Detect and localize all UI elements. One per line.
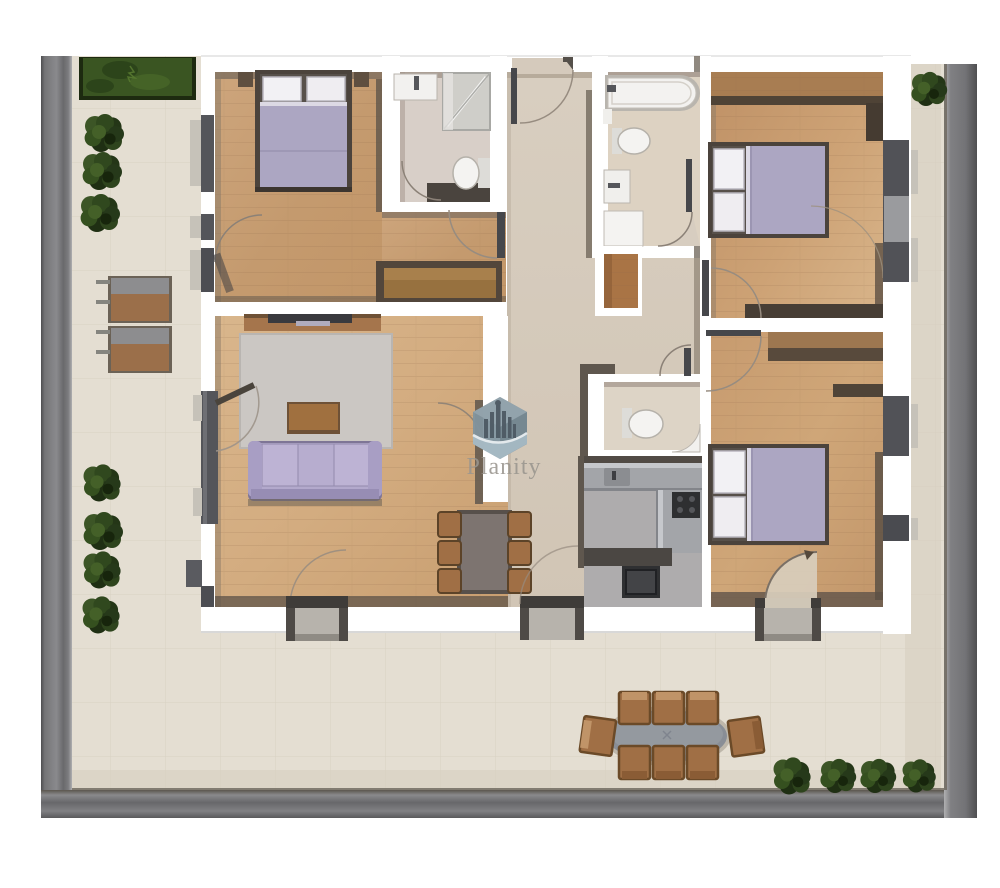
svg-text:Planity: Planity <box>466 454 541 480</box>
